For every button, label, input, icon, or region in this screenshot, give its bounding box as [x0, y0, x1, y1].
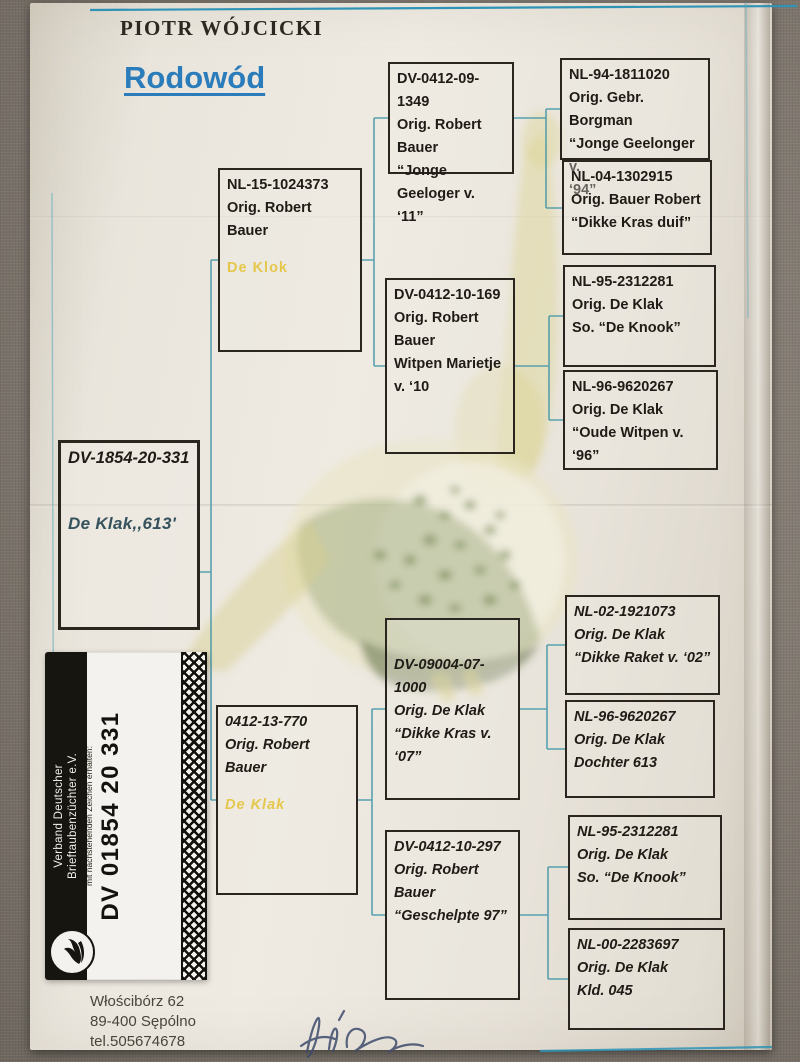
ring-id: NL-15-1024373	[227, 174, 353, 197]
info-line: So. “De Knook”	[572, 317, 707, 340]
pedigree-box-ggparent-4: NL-96-9620267 Orig. De Klak “Oude Witpen…	[563, 370, 718, 470]
verband-name-line: Verband Deutscher	[52, 764, 66, 868]
ring-id: NL-95-2312281	[572, 271, 707, 294]
address-line: 89-400 Sępólno	[90, 1012, 196, 1032]
pedigree-box-mother: 0412-13-770 Orig. Robert Bauer De Klak	[216, 705, 358, 895]
ring-id: DV-0412-10-169	[394, 284, 506, 307]
pedigree-box-ggparent-5: NL-02-1921073 Orig. De Klak “Dikke Raket…	[565, 595, 720, 695]
pigeon-name-highlighted: De Klak	[225, 794, 349, 817]
info-line: Orig. Bauer Robert	[571, 189, 703, 212]
info-line: “Dikke Raket v. ‘02”	[574, 647, 711, 670]
ring-number: DV 01854 20 331	[97, 652, 125, 980]
info-line: “Dikke Kras v. ‘07”	[394, 723, 511, 769]
pedigree-box-ggparent-2: NL-04-1302915 Orig. Bauer Robert “Dikke …	[562, 160, 712, 255]
info-line: Orig. De Klak	[574, 624, 711, 647]
ring-id: NL-96-9620267	[574, 706, 706, 729]
address-line: Włościbórz 62	[90, 992, 196, 1012]
pedigree-box-subject: DV-1854-20-331 De Klak,,613'	[58, 440, 200, 630]
paper-fold-edge	[744, 3, 770, 1050]
ring-id: NL-95-2312281	[577, 821, 713, 844]
pedigree-box-grandparent-4: DV-0412-10-297 Orig. Robert Bauer “Gesch…	[385, 830, 520, 1000]
pedigree-box-grandparent-3: DV-09004-07-1000 Orig. De Klak “Dikke Kr…	[385, 618, 520, 800]
ring-id: NL-00-2283697	[577, 934, 716, 957]
info-line: So. “De Knook”	[577, 867, 713, 890]
info-line: Orig. De Klak	[577, 844, 713, 867]
pedigree-title: Rodowód	[124, 60, 265, 96]
ownership-sticker: Verband Deutscher Brieftaubenzüchter e.V…	[45, 652, 207, 980]
info-line: v. ‘10	[394, 376, 506, 399]
info-line: Orig. Robert	[394, 307, 506, 330]
pigeon-name: De Klak,,613'	[68, 512, 190, 535]
pigeon-name-highlighted: De Klok	[227, 257, 353, 280]
origin-line: Orig. Robert Bauer	[227, 197, 353, 243]
info-line: Witpen Marietje	[394, 353, 506, 376]
info-line: Orig. De Klak	[577, 957, 716, 980]
barcode-pattern	[181, 652, 207, 980]
info-line: Kld. 045	[577, 980, 716, 1003]
owner-name: PIOTR WÓJCICKI	[120, 16, 323, 41]
pedigree-box-ggparent-7: NL-95-2312281 Orig. De Klak So. “De Knoo…	[568, 815, 722, 920]
ring-id: NL-02-1921073	[574, 601, 711, 624]
info-line: Orig. Gebr. Borgman	[569, 87, 701, 133]
address-block: Włościbórz 62 89-400 Sępólno tel.5056746…	[90, 992, 196, 1052]
origin-line: Orig. Robert Bauer	[225, 734, 349, 780]
ring-id: NL-04-1302915	[571, 166, 703, 189]
info-line: Bauer	[394, 330, 506, 353]
info-line: “Geschelpte 97”	[394, 905, 511, 928]
info-line: Orig. De Klak	[572, 294, 707, 317]
info-line: Orig. De Klak	[574, 729, 706, 752]
phone-line: tel.505674678	[90, 1032, 196, 1052]
pedigree-box-ggparent-6: NL-96-9620267 Orig. De Klak Dochter 613	[565, 700, 715, 798]
pigeon-logo-icon	[49, 929, 95, 975]
info-line: Orig. Robert Bauer	[394, 859, 511, 905]
ring-id: 0412-13-770	[225, 711, 349, 734]
pedigree-box-ggparent-8: NL-00-2283697 Orig. De Klak Kld. 045	[568, 928, 725, 1030]
signature	[295, 1002, 445, 1062]
verband-name-line: Brieftaubenzüchter e.V.	[66, 753, 80, 879]
ring-id: NL-94-1811020	[569, 64, 701, 87]
ring-id: NL-96-9620267	[572, 376, 709, 399]
info-line: ‘11”	[397, 206, 505, 229]
info-line: “Dikke Kras duif”	[571, 212, 703, 235]
pedigree-box-father: NL-15-1024373 Orig. Robert Bauer De Klok	[218, 168, 362, 352]
info-line: Orig. De Klak	[572, 399, 709, 422]
pedigree-box-ggparent-1: NL-94-1811020 Orig. Gebr. Borgman “Jonge…	[560, 58, 710, 160]
info-line: Orig. De Klak	[394, 700, 511, 723]
ring-id: DV-09004-07-1000	[394, 654, 511, 700]
info-line: “Jonge Geeloger v.	[397, 160, 505, 206]
pedigree-box-ggparent-3: NL-95-2312281 Orig. De Klak So. “De Knoo…	[563, 265, 716, 367]
pedigree-box-grandparent-2: DV-0412-10-169 Orig. Robert Bauer Witpen…	[385, 278, 515, 454]
info-line: Dochter 613	[574, 752, 706, 775]
info-line: Orig. Robert Bauer	[397, 114, 505, 160]
ring-id: DV-0412-09-1349	[397, 68, 505, 114]
pedigree-box-grandparent-1: DV-0412-09-1349 Orig. Robert Bauer “Jong…	[388, 62, 514, 174]
ring-id: DV-0412-10-297	[394, 836, 511, 859]
info-line: “Oude Witpen v. ‘96”	[572, 422, 709, 468]
ring-id: DV-1854-20-331	[68, 447, 190, 470]
